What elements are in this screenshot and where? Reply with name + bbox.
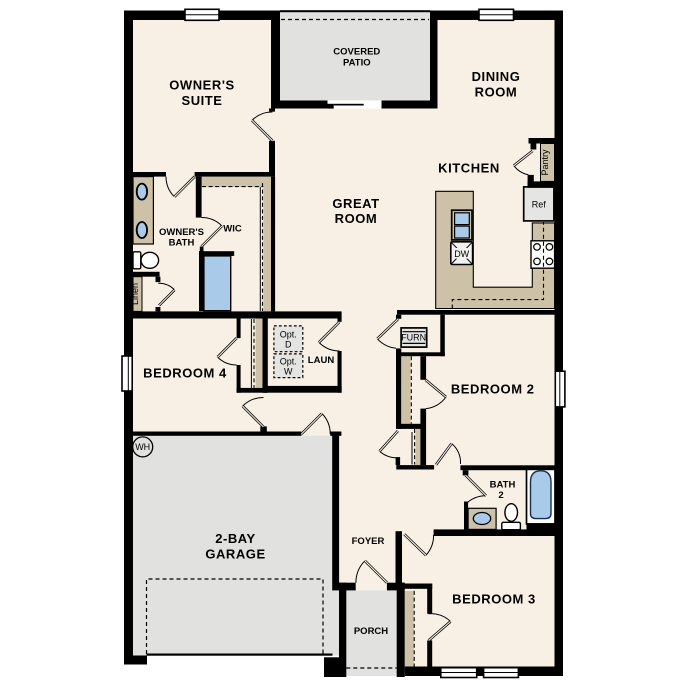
svg-text:2: 2 <box>498 490 503 501</box>
svg-text:GARAGE: GARAGE <box>205 546 265 561</box>
svg-text:BEDROOM 2: BEDROOM 2 <box>451 381 535 396</box>
svg-text:LAUN: LAUN <box>308 355 335 366</box>
svg-text:BEDROOM 3: BEDROOM 3 <box>452 592 536 607</box>
svg-text:BATH: BATH <box>490 479 516 490</box>
svg-text:Opt.: Opt. <box>280 357 297 367</box>
svg-text:DW: DW <box>454 249 469 259</box>
svg-text:PATIO: PATIO <box>343 57 371 68</box>
svg-text:WH: WH <box>135 442 150 452</box>
svg-text:DINING: DINING <box>472 69 521 84</box>
svg-text:W: W <box>284 367 293 377</box>
svg-text:D: D <box>285 340 292 350</box>
svg-text:BATH: BATH <box>169 237 195 248</box>
svg-text:SUITE: SUITE <box>181 93 222 108</box>
svg-text:KITCHEN: KITCHEN <box>438 161 500 176</box>
svg-text:OWNER'S: OWNER'S <box>159 227 204 238</box>
svg-text:ROOM: ROOM <box>335 211 378 226</box>
svg-text:BEDROOM 4: BEDROOM 4 <box>143 366 227 381</box>
svg-text:ROOM: ROOM <box>475 84 518 99</box>
svg-text:GREAT: GREAT <box>332 196 379 211</box>
svg-text:FURN: FURN <box>401 333 426 343</box>
svg-text:COVERED: COVERED <box>333 47 380 58</box>
svg-text:Pantry: Pantry <box>540 149 550 176</box>
svg-text:OWNER'S: OWNER'S <box>169 78 234 93</box>
svg-text:FOYER: FOYER <box>352 536 385 547</box>
svg-text:Opt.: Opt. <box>280 330 297 340</box>
svg-text:Ref: Ref <box>532 199 547 209</box>
svg-text:PORCH: PORCH <box>354 626 388 637</box>
svg-text:WIC: WIC <box>223 223 242 234</box>
svg-text:2-BAY: 2-BAY <box>215 531 256 546</box>
